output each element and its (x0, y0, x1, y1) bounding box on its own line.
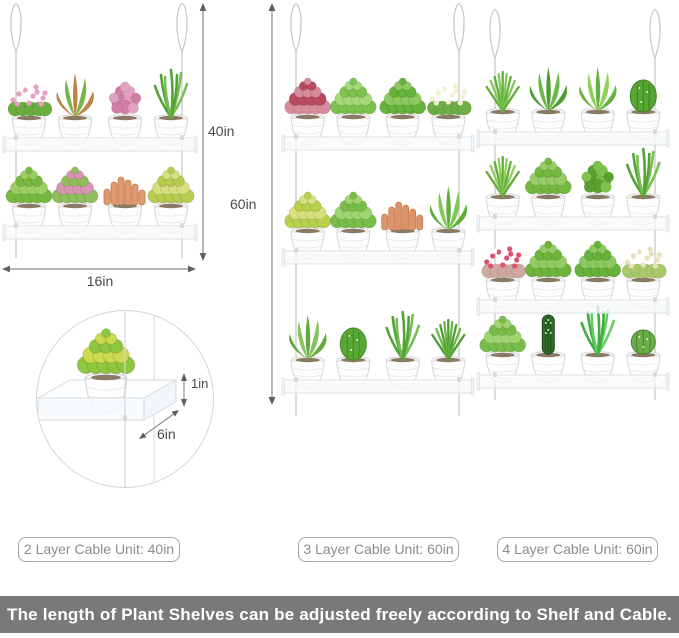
potted-plant (581, 161, 614, 225)
potted-plant (330, 192, 376, 259)
cable-loop (291, 4, 301, 53)
cable-clip (294, 377, 298, 382)
potted-plant (285, 78, 331, 145)
potted-plant (581, 307, 614, 383)
cable-loop (650, 10, 660, 59)
cable-loop (177, 4, 187, 53)
depth-6in-label: 6in (157, 426, 176, 442)
shelf-detail-drawing (37, 311, 213, 487)
potted-plant (289, 315, 327, 388)
potted-plant (525, 158, 571, 225)
potted-plant (330, 78, 376, 145)
cable-clip (493, 372, 497, 377)
cable-clip (180, 223, 184, 228)
cable-clip (457, 377, 461, 382)
cable-clip (493, 297, 497, 302)
potted-plant (486, 72, 519, 140)
cable-clip (653, 297, 657, 302)
label-2-layer-unit: 2 Layer Cable Unit: 40in (18, 537, 180, 562)
cable-clip (14, 223, 18, 228)
potted-plant (427, 83, 471, 144)
shelf-front-face (38, 398, 144, 420)
potted-plant (104, 177, 145, 234)
potted-plant (480, 316, 526, 383)
acrylic-shelf (477, 298, 669, 315)
banner: The length of Plant Shelves can be adjus… (0, 596, 679, 633)
potted-plant (56, 73, 94, 146)
potted-plant (109, 82, 142, 146)
potted-plant (622, 246, 666, 307)
potted-plant (52, 167, 98, 234)
potted-plant (430, 186, 468, 259)
cable-loop (11, 4, 21, 53)
cable-clip (14, 135, 18, 140)
potted-plant (486, 157, 519, 225)
acrylic-shelf (282, 378, 474, 395)
potted-plant (380, 78, 426, 145)
cable-clip (493, 214, 497, 219)
acrylic-shelf (282, 249, 474, 266)
potted-plant (579, 67, 617, 140)
product-infographic: 40in 16in 60in 1in 6in 2 Layer Cable Uni… (0, 0, 679, 638)
potted-plant (148, 167, 194, 234)
height-40in-label: 40in (208, 123, 234, 139)
cable-clip (653, 129, 657, 134)
potted-plant (382, 202, 423, 259)
height-60in-label: 60in (230, 196, 256, 212)
width-16in-arrow (2, 266, 196, 273)
acrylic-shelf (3, 224, 197, 241)
potted-plant (6, 167, 52, 234)
cable-clip (653, 214, 657, 219)
cable-clip (493, 129, 497, 134)
cable-clip (457, 134, 461, 139)
acrylic-shelf (477, 373, 669, 390)
cable-clip (123, 415, 127, 421)
cable-clip (180, 135, 184, 140)
cable-clip (457, 248, 461, 253)
cable-loop (454, 4, 464, 53)
height-60in-arrow (269, 3, 276, 405)
cable-clip (294, 248, 298, 253)
acrylic-shelf (477, 130, 669, 147)
lip-1in-arrow (181, 373, 187, 407)
potted-plant (575, 241, 621, 308)
potted-plant (482, 246, 526, 307)
acrylic-shelf (3, 136, 197, 153)
potted-plant (386, 312, 419, 388)
lip-1in-label: 1in (191, 376, 208, 391)
potted-plant (525, 241, 571, 308)
label-3-layer-unit: 3 Layer Cable Unit: 60in (298, 537, 459, 562)
shelf-detail-circle (36, 310, 214, 488)
cable-clip (653, 372, 657, 377)
potted-plant (530, 67, 568, 140)
cable-loop (490, 10, 500, 59)
acrylic-shelf (477, 215, 669, 232)
potted-plant (337, 328, 370, 388)
acrylic-shelf (282, 135, 474, 152)
cable-clip (294, 134, 298, 139)
potted-plant (532, 315, 565, 383)
height-40in-arrow (200, 3, 207, 261)
width-16in-label: 16in (4, 273, 196, 289)
potted-plant (285, 192, 331, 259)
label-4-layer-unit: 4 Layer Cable Unit: 60in (497, 537, 658, 562)
